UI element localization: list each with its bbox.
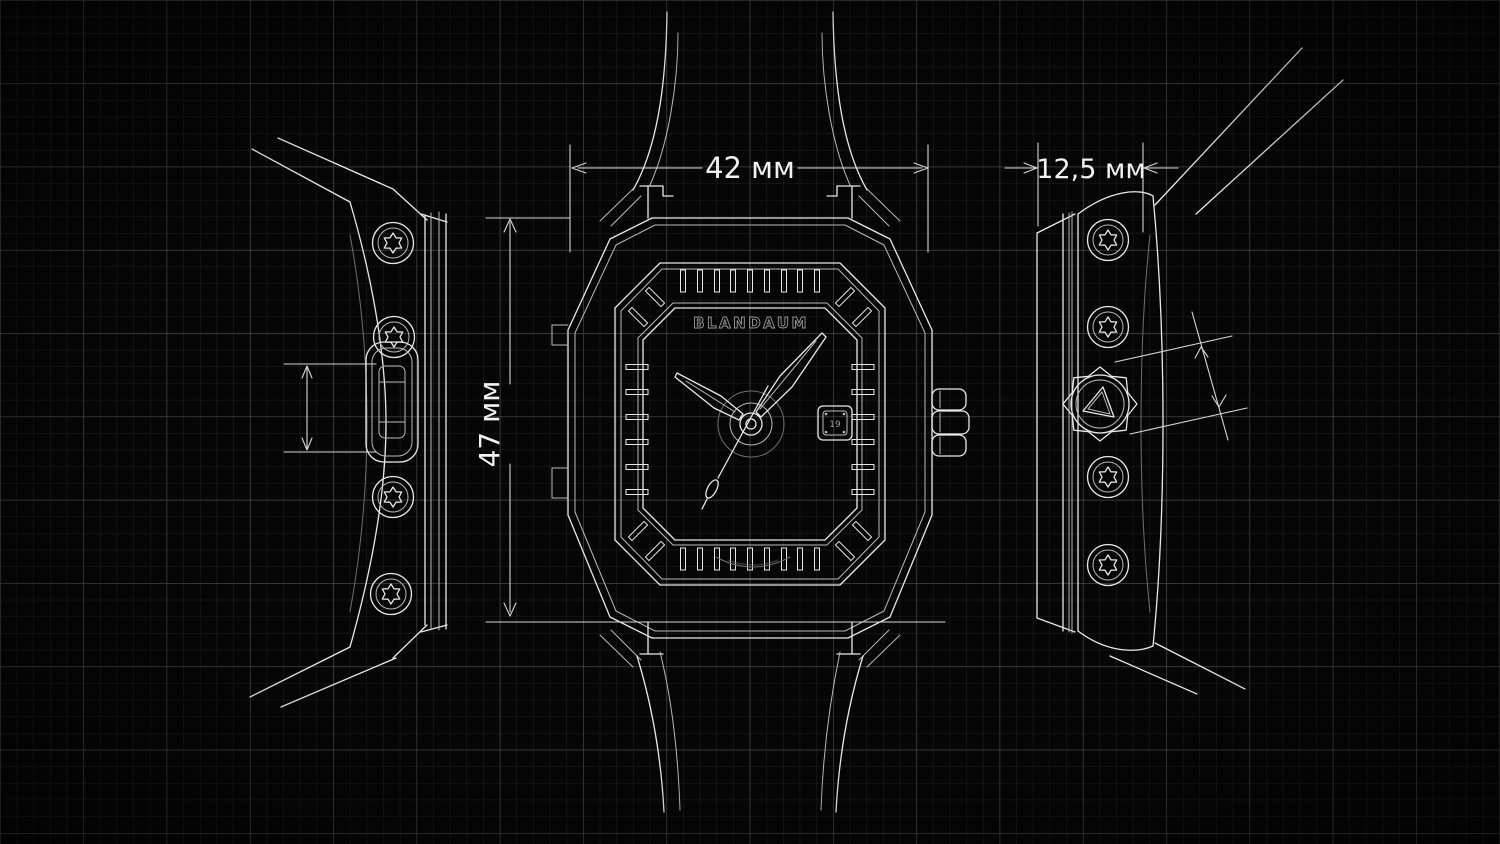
blueprint-canvas: BLANDAUM 19	[0, 0, 1500, 844]
vignette-overlay	[0, 0, 1500, 844]
blueprint-stage: BLANDAUM 19	[0, 0, 1500, 844]
